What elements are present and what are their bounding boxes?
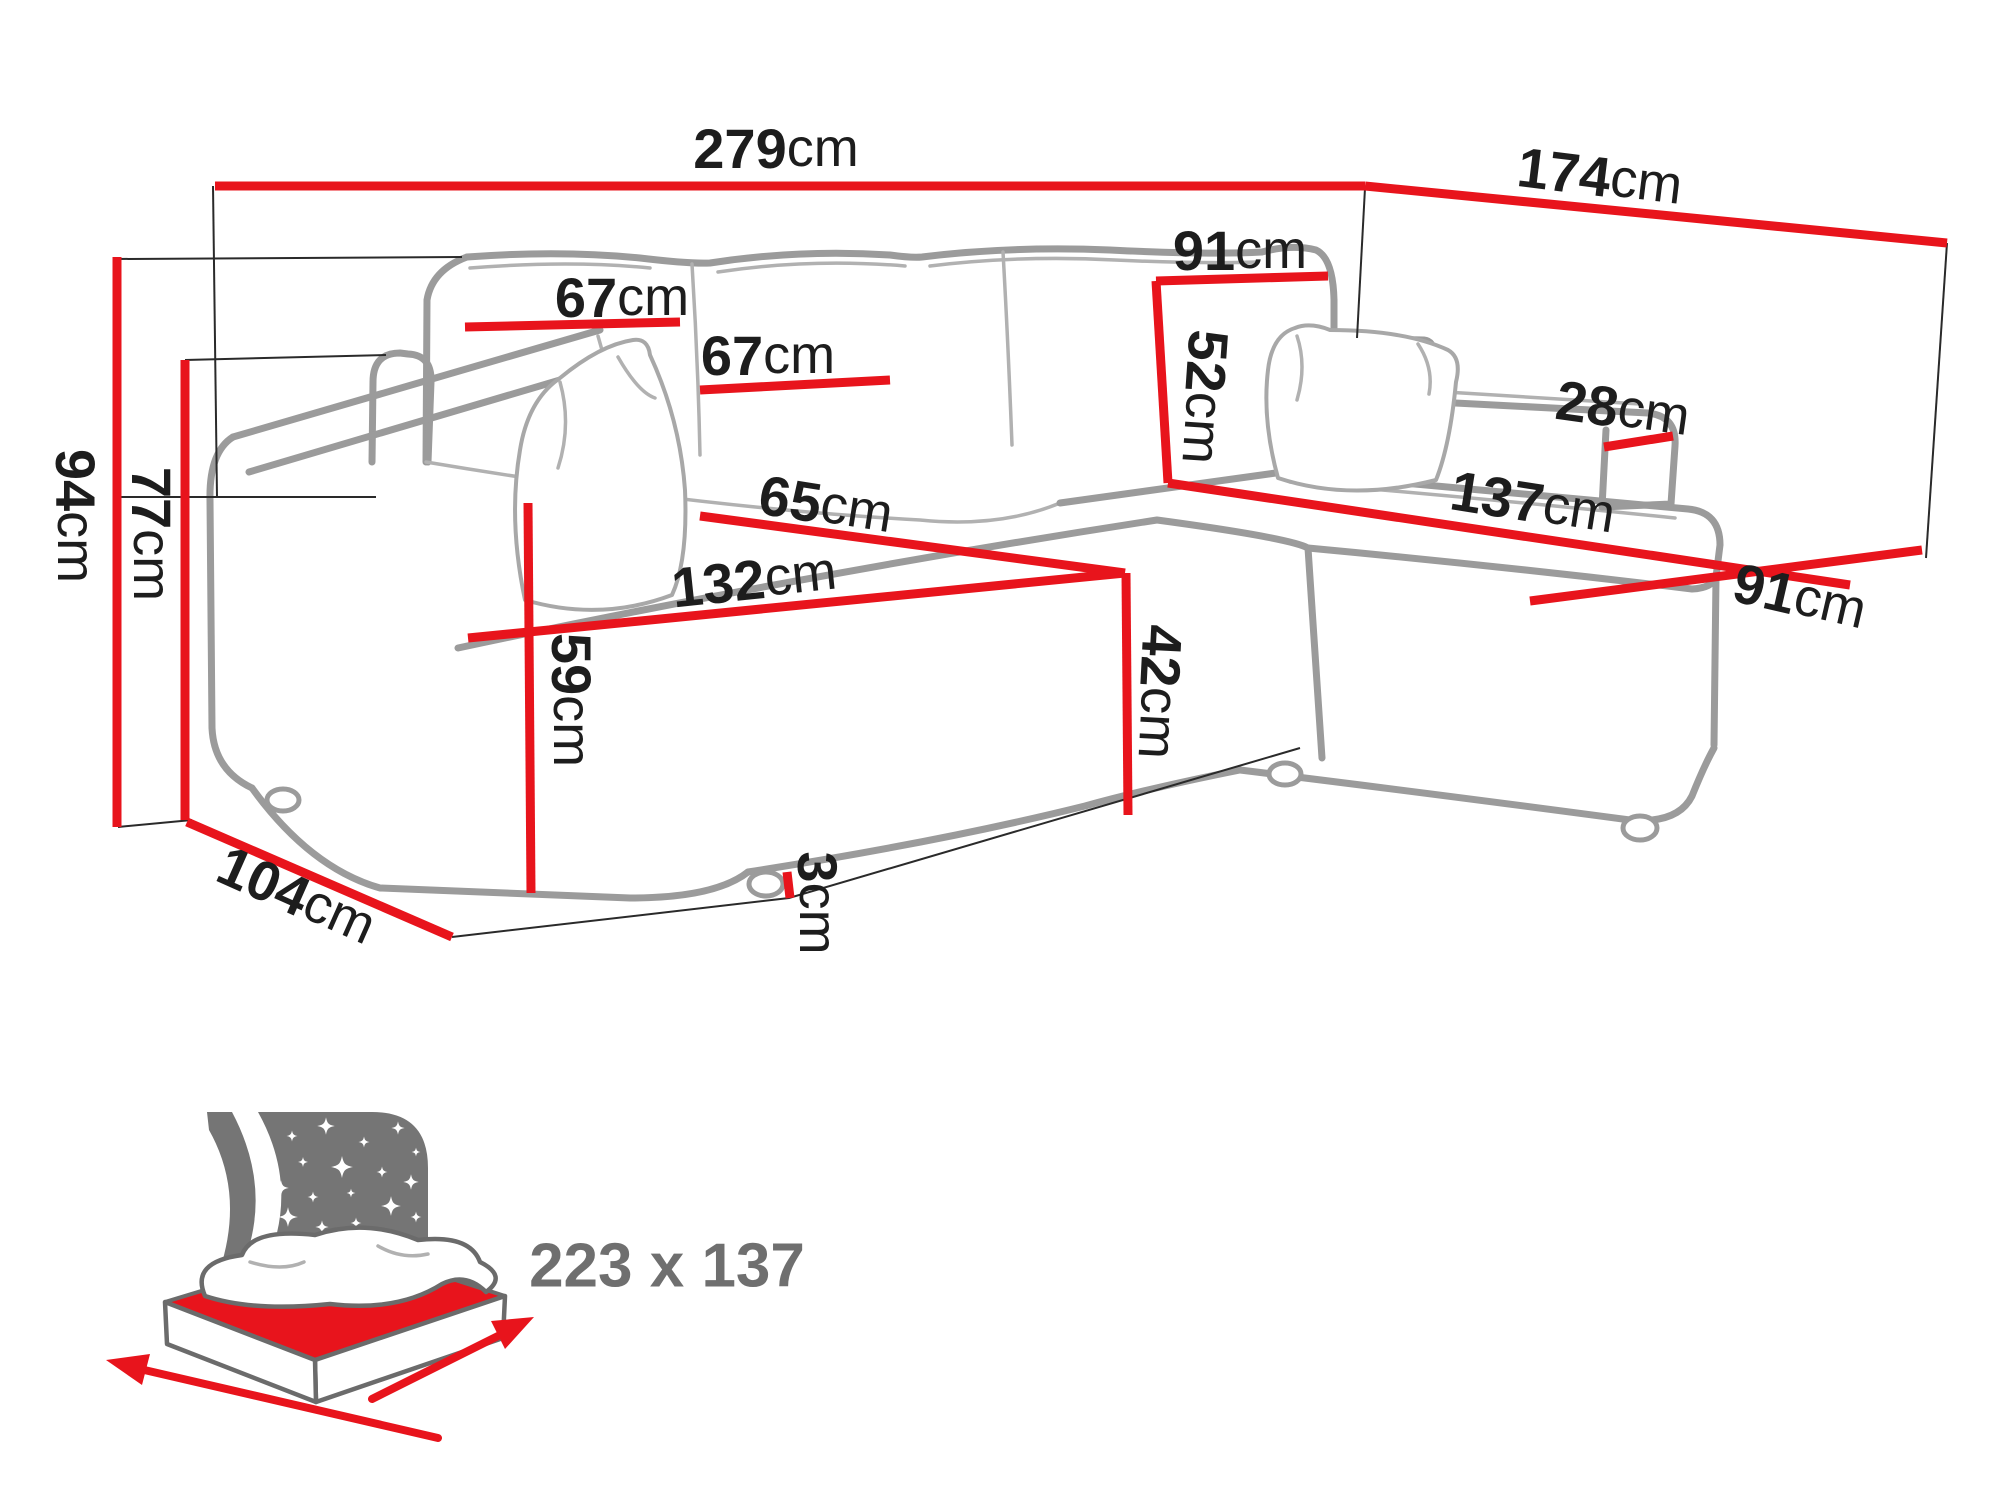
- ref-height-top: [117, 257, 462, 259]
- ref-floor-line: [452, 748, 1300, 937]
- bed-width-arrow-head-icon: [106, 1354, 150, 1385]
- ref-top-left-vertical: [213, 186, 217, 497]
- bed-length-arrow-head-icon: [491, 1317, 534, 1349]
- pillow-left: [515, 340, 685, 610]
- ref-corner-drop: [1357, 188, 1365, 338]
- dim-seat-height-label: 42cm: [1125, 623, 1195, 760]
- dim-backrest-height-label: 77cm: [121, 467, 184, 601]
- dimension-diagram: 279cm 174cm 94cm 77cm 104cm 67cm 67cm 91…: [0, 0, 2000, 1500]
- sofa-leg-chaise-right: [1623, 816, 1657, 840]
- dim-back-cushion-mid-label: 67cm: [701, 324, 835, 387]
- dim-corner-width-label: 91cm: [1173, 219, 1307, 282]
- sofa-cushion-seam-1: [692, 264, 700, 455]
- dim-leg-height-label: 3cm: [787, 851, 850, 954]
- ref-depth-drop: [1926, 243, 1947, 558]
- dim-overall-width-label: 279cm: [693, 117, 858, 180]
- sleeping-area-icon: 223 x 137: [106, 1112, 805, 1438]
- sofa-left-arm-back-panel: [372, 353, 431, 462]
- dim-chaise-width-label: 91cm: [1727, 550, 1872, 642]
- dim-line-corner-backrest-height: [1156, 281, 1168, 483]
- chaise-front-left-edge: [1308, 548, 1322, 758]
- sofa-leg-center: [749, 872, 783, 896]
- sofa-cushion-seam-2: [1003, 252, 1012, 445]
- dim-overall-height-label: 94cm: [45, 449, 108, 583]
- pillow-right: [1266, 325, 1457, 490]
- sleeping-area-size-label: 223 x 137: [529, 1232, 805, 1301]
- sofa-leg-chaise-left: [1269, 763, 1301, 785]
- dimension-lines: [117, 186, 1947, 937]
- sofa-leg-left: [267, 789, 299, 811]
- chaise-right-front-edge: [1714, 577, 1716, 745]
- sofa-sketch: [210, 247, 1720, 898]
- diagram-canvas: 279cm 174cm 94cm 77cm 104cm 67cm 67cm 91…: [0, 0, 2000, 1500]
- dim-corner-backrest-height-label: 52cm: [1169, 328, 1241, 466]
- dim-seat-depth-label: 65cm: [755, 462, 897, 545]
- dim-armrest-width-label: 28cm: [1552, 367, 1694, 448]
- chaise-bottom-edge: [1240, 748, 1714, 821]
- sofa-left-arm-inner-ridge: [249, 380, 560, 472]
- dim-armrest-height-label: 59cm: [541, 633, 604, 767]
- ref-height-bottom: [118, 820, 192, 827]
- dim-body-depth-label: 104cm: [209, 833, 386, 958]
- dim-line-seat-height: [1126, 573, 1128, 815]
- dim-line-armrest-height: [528, 503, 531, 893]
- dim-back-cushion-left-label: 67cm: [555, 266, 689, 329]
